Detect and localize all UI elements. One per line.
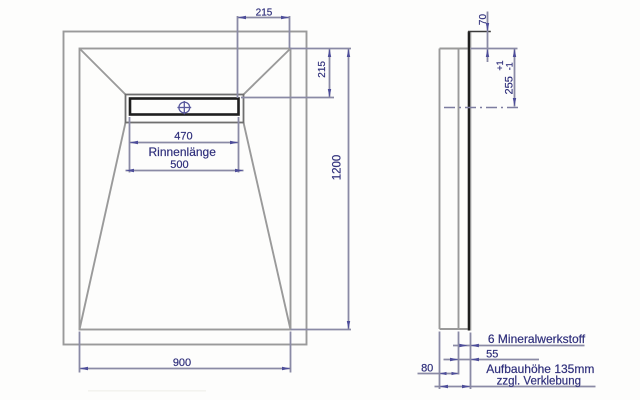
svg-text:zzgl. Verklebung: zzgl. Verklebung [497, 376, 581, 388]
svg-text:+1: +1 [495, 60, 505, 70]
svg-text:80: 80 [421, 363, 433, 375]
svg-text:255: 255 [504, 76, 516, 94]
svg-text:470: 470 [174, 130, 192, 142]
svg-text:215: 215 [256, 8, 273, 19]
svg-text:-1: -1 [505, 62, 515, 70]
svg-text:6 Mineralwerkstoff: 6 Mineralwerkstoff [488, 332, 586, 346]
svg-text:55: 55 [486, 348, 498, 360]
svg-text:70: 70 [478, 14, 489, 26]
svg-text:900: 900 [173, 357, 191, 369]
svg-text:500: 500 [170, 159, 188, 171]
svg-text:215: 215 [317, 61, 328, 78]
svg-text:Rinnenlänge: Rinnenlänge [149, 145, 217, 159]
svg-text:1200: 1200 [332, 155, 344, 181]
svg-text:Aufbauhöhe 135mm: Aufbauhöhe 135mm [486, 362, 594, 376]
